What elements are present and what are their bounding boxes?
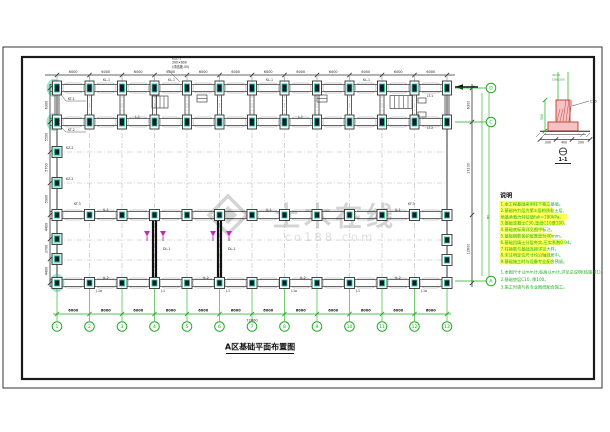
right-dim-value: 17200 — [467, 163, 471, 174]
beam-label: KL-1 — [103, 78, 110, 82]
column-core — [152, 280, 157, 286]
column-core — [445, 212, 450, 218]
left-dim-value: 4400 — [45, 267, 49, 275]
right-dim-value: 6300 — [467, 101, 471, 110]
beam-label: JL-2 — [299, 276, 306, 280]
column-core — [282, 118, 287, 126]
top-dim-value: 6000 — [329, 70, 338, 74]
ground-hatch — [536, 133, 540, 137]
detail-leader — [572, 101, 589, 106]
column-core — [412, 212, 417, 218]
column-core — [87, 280, 92, 286]
column-core — [315, 212, 320, 218]
column-core — [445, 257, 450, 263]
column-core — [185, 84, 190, 92]
note-line-yellow: 5.基础钢筋保护层厚度为40mm。 — [501, 233, 565, 240]
beam-label: LT-1 — [427, 94, 433, 98]
right-dim-value: 12600 — [467, 244, 471, 255]
note-line-green: 3.施工时请与各专业图纸配合施工。 — [501, 284, 568, 291]
column-core — [217, 118, 222, 126]
column-core — [185, 280, 190, 286]
top-dim-value: 6000 — [166, 70, 175, 74]
column-core — [185, 118, 190, 126]
cad-drawing: 土木在线co188.com600060006000600060006000600… — [0, 0, 610, 432]
column-core — [380, 84, 385, 92]
column-core — [120, 84, 125, 92]
detail-left-dim-value: 500 — [540, 114, 544, 120]
bottom-dim-value: 6000 — [328, 309, 339, 313]
beam-label: J-1 — [355, 289, 360, 293]
column-core — [412, 118, 417, 126]
column-core — [55, 256, 60, 262]
top-dim-value: 6000 — [134, 70, 143, 74]
beam-label: DL-1 — [163, 247, 170, 251]
note-line-yellow: 3.基础混凝土C30,垫层C10厚100。 — [501, 220, 569, 227]
detail-leader-text: C10 — [590, 100, 597, 104]
section-marker-triangle — [144, 231, 150, 237]
column-core — [55, 236, 60, 242]
column-core — [347, 118, 352, 126]
column-core — [412, 280, 417, 286]
top-dim-value: 6000 — [69, 70, 78, 74]
left-dim-value: 5700 — [45, 163, 49, 171]
drawing-title: A区基础平面布置图 — [225, 342, 295, 352]
column-core — [120, 118, 125, 126]
beam-label: KT-3 — [74, 202, 81, 206]
beam-label: L-1 — [298, 115, 303, 119]
axis-bubble-number: 1 — [56, 324, 59, 330]
column-core — [55, 212, 60, 218]
note-line-yellow: 7.柱插筋与基础连接详见大样。 — [501, 245, 559, 252]
bottom-dim-value: 6000 — [296, 309, 307, 313]
column-core — [445, 237, 450, 243]
note-line-yellow: 2.基础持力层为第②层粉质粘土层, — [501, 207, 565, 214]
axis-bubble-number: 5 — [186, 324, 189, 330]
note-line-green: 2.基础垫层C10, 厚100。 — [501, 276, 549, 283]
beam-label: JL-2 — [202, 276, 209, 280]
beam-label: KL-1 — [168, 78, 175, 82]
column-core — [380, 212, 385, 218]
beam-label: J-1a — [290, 289, 297, 293]
column-core — [152, 212, 157, 218]
beam-label: J-1a — [95, 289, 102, 293]
bottom-dim-value: 6000 — [263, 309, 274, 313]
top-dim-value: 6000 — [296, 70, 305, 74]
column-core — [315, 84, 320, 92]
column-core — [55, 118, 60, 126]
axis-bubble-number: 8 — [283, 324, 286, 330]
left-dim-value: 3700 — [45, 245, 49, 253]
axis-mid-letter: B — [487, 215, 490, 220]
beam-label: KT-3 — [408, 202, 415, 206]
left-dim-value: 6300 — [45, 101, 49, 109]
note-line-green: 1.本图尺寸以mm计,标高以m计,详见总说明(结施-01)。 — [501, 269, 605, 276]
top-dim-value: 6000 — [361, 70, 370, 74]
detail-dim-value: 200 — [545, 141, 551, 145]
column-core — [347, 212, 352, 218]
note-line-yellow: 1.本工程基础采用柱下独立基础。 — [501, 201, 564, 208]
leader-line — [60, 93, 66, 101]
beam-label: J-1a — [420, 289, 427, 293]
detail-footing-step — [548, 122, 578, 131]
column-core — [282, 84, 287, 92]
column-core — [120, 212, 125, 218]
axis-bubble-number: 13 — [444, 324, 450, 330]
stair-outline — [390, 96, 412, 109]
top-dim-value: 6000 — [101, 70, 110, 74]
top-dim-value: 6000 — [264, 70, 273, 74]
beam-label: KT-1 — [68, 97, 75, 101]
note-line-yellow: 4.基础底标高详见图中标注。 — [501, 226, 555, 233]
detail-pedestal — [556, 100, 570, 122]
bottom-dim-value: 6000 — [361, 309, 372, 313]
top-dim-value: 6000 — [199, 70, 208, 74]
left-dim-value: 5500 — [45, 133, 49, 141]
bottom-dim-value: 6000 — [198, 309, 209, 313]
axis-bubble-number: 4 — [153, 324, 156, 330]
beam-label: KL-1 — [363, 78, 370, 82]
column-core — [445, 84, 450, 92]
note-line-yellow: 地基承载力特征值fak=180kPa。 — [501, 213, 564, 220]
beam-label: KZ-2 — [66, 177, 73, 181]
detail-dim-value: 400 — [561, 141, 567, 145]
column-core — [380, 280, 385, 286]
top-dim-value: 6000 — [394, 70, 403, 74]
column-core — [347, 280, 352, 286]
column-core — [152, 84, 157, 92]
watermark-subtext: co188.com — [285, 230, 376, 244]
beam-label: JL-2 — [102, 276, 109, 280]
bottom-dim-value: 6000 — [166, 309, 177, 313]
beam-label: LT-2 — [427, 126, 433, 130]
column-core — [87, 212, 92, 218]
ground-hatch — [542, 133, 546, 137]
beam-label: JL-1 — [102, 208, 109, 212]
note-line-yellow: 8.未注明定位尺寸均沿轴线居中。 — [501, 252, 564, 259]
section-marker-triangle — [210, 231, 216, 237]
column-core — [87, 84, 92, 92]
column-core — [152, 118, 157, 126]
column-core — [217, 280, 222, 286]
beam-section-box — [418, 98, 426, 103]
beam-label: KT-2 — [68, 128, 75, 132]
detail-rebar-text: 4C14 — [552, 73, 560, 77]
beam-label: JL-1 — [265, 208, 272, 212]
beam-label: JL-1 — [394, 208, 401, 212]
axis-bubble-letter: C — [489, 120, 492, 126]
beam-label: KZ-2 — [66, 146, 73, 150]
column-core — [87, 118, 92, 126]
note-line-yellow: 6.基础回填土分层夯实,压实系数0.94。 — [501, 239, 574, 246]
axis-bubble-number: 10 — [347, 324, 353, 330]
column-core — [282, 212, 287, 218]
axis-bubble-number: 12 — [412, 324, 418, 330]
beam-label: JL-2 — [394, 276, 401, 280]
column-core — [412, 84, 417, 92]
left-dim-value: 5900 — [45, 195, 49, 203]
detail-rebar-text: C8@200 — [552, 78, 565, 82]
axis-bubble-number: 3 — [121, 324, 124, 330]
column-core — [55, 180, 60, 186]
beam-label: L-1 — [135, 115, 140, 119]
bottom-dim-value: 6000 — [426, 309, 437, 313]
left-dim-value: 4400 — [45, 223, 49, 231]
ground-hatch — [586, 133, 590, 137]
axis-bubble-number: 7 — [251, 324, 254, 330]
bottom-dim-value: 6000 — [101, 309, 112, 313]
axis-bubble-number: 6 — [218, 324, 221, 330]
column-core — [55, 84, 60, 92]
axis-bubble-number: 11 — [379, 324, 385, 330]
column-core — [250, 212, 255, 218]
bottom-dim-value: 6000 — [231, 309, 242, 313]
top-dim-value: 6000 — [231, 70, 240, 74]
beam-label: KL-1 — [266, 78, 273, 82]
column-core — [445, 280, 450, 286]
column-core — [445, 118, 450, 126]
ground-hatch — [580, 133, 584, 137]
bottom-dim-value: 6000 — [393, 309, 404, 313]
beam-label: J-1 — [225, 289, 230, 293]
top-stacked-label: (详结施-05) — [172, 64, 189, 69]
column-core — [217, 84, 222, 92]
detail-label: 1-1 — [558, 157, 568, 163]
column-core — [380, 118, 385, 126]
axis-bubble-letter: D — [489, 86, 493, 92]
column-core — [217, 212, 222, 218]
axis-bubble-number: 9 — [316, 324, 319, 330]
bottom-dim-value: 6000 — [68, 309, 79, 313]
bottom-dim-value: 6000 — [133, 309, 144, 313]
section-marker-triangle — [160, 231, 166, 237]
column-core — [315, 280, 320, 286]
column-core — [347, 84, 352, 92]
detail-dim-value: 200 — [578, 141, 584, 145]
notes-header: 说明 — [500, 192, 512, 200]
axis-bubble-number: 2 — [88, 324, 91, 330]
column-core — [120, 280, 125, 286]
column-core — [250, 280, 255, 286]
beam-label: J-1 — [160, 289, 165, 293]
arrow-head — [455, 84, 463, 89]
column-core — [55, 149, 60, 155]
beam-label: DL-1 — [228, 247, 235, 251]
column-core — [250, 84, 255, 92]
top-dim-value: 6000 — [426, 70, 435, 74]
column-core — [55, 280, 60, 286]
column-core — [315, 118, 320, 126]
column-core — [282, 280, 287, 286]
drawing-sheet: 土木在线co188.com600060006000600060006000600… — [0, 0, 610, 432]
note-line-yellow: 9.基础施工时与设备专业配合预留。 — [501, 258, 568, 265]
column-core — [250, 118, 255, 126]
column-core — [185, 212, 190, 218]
